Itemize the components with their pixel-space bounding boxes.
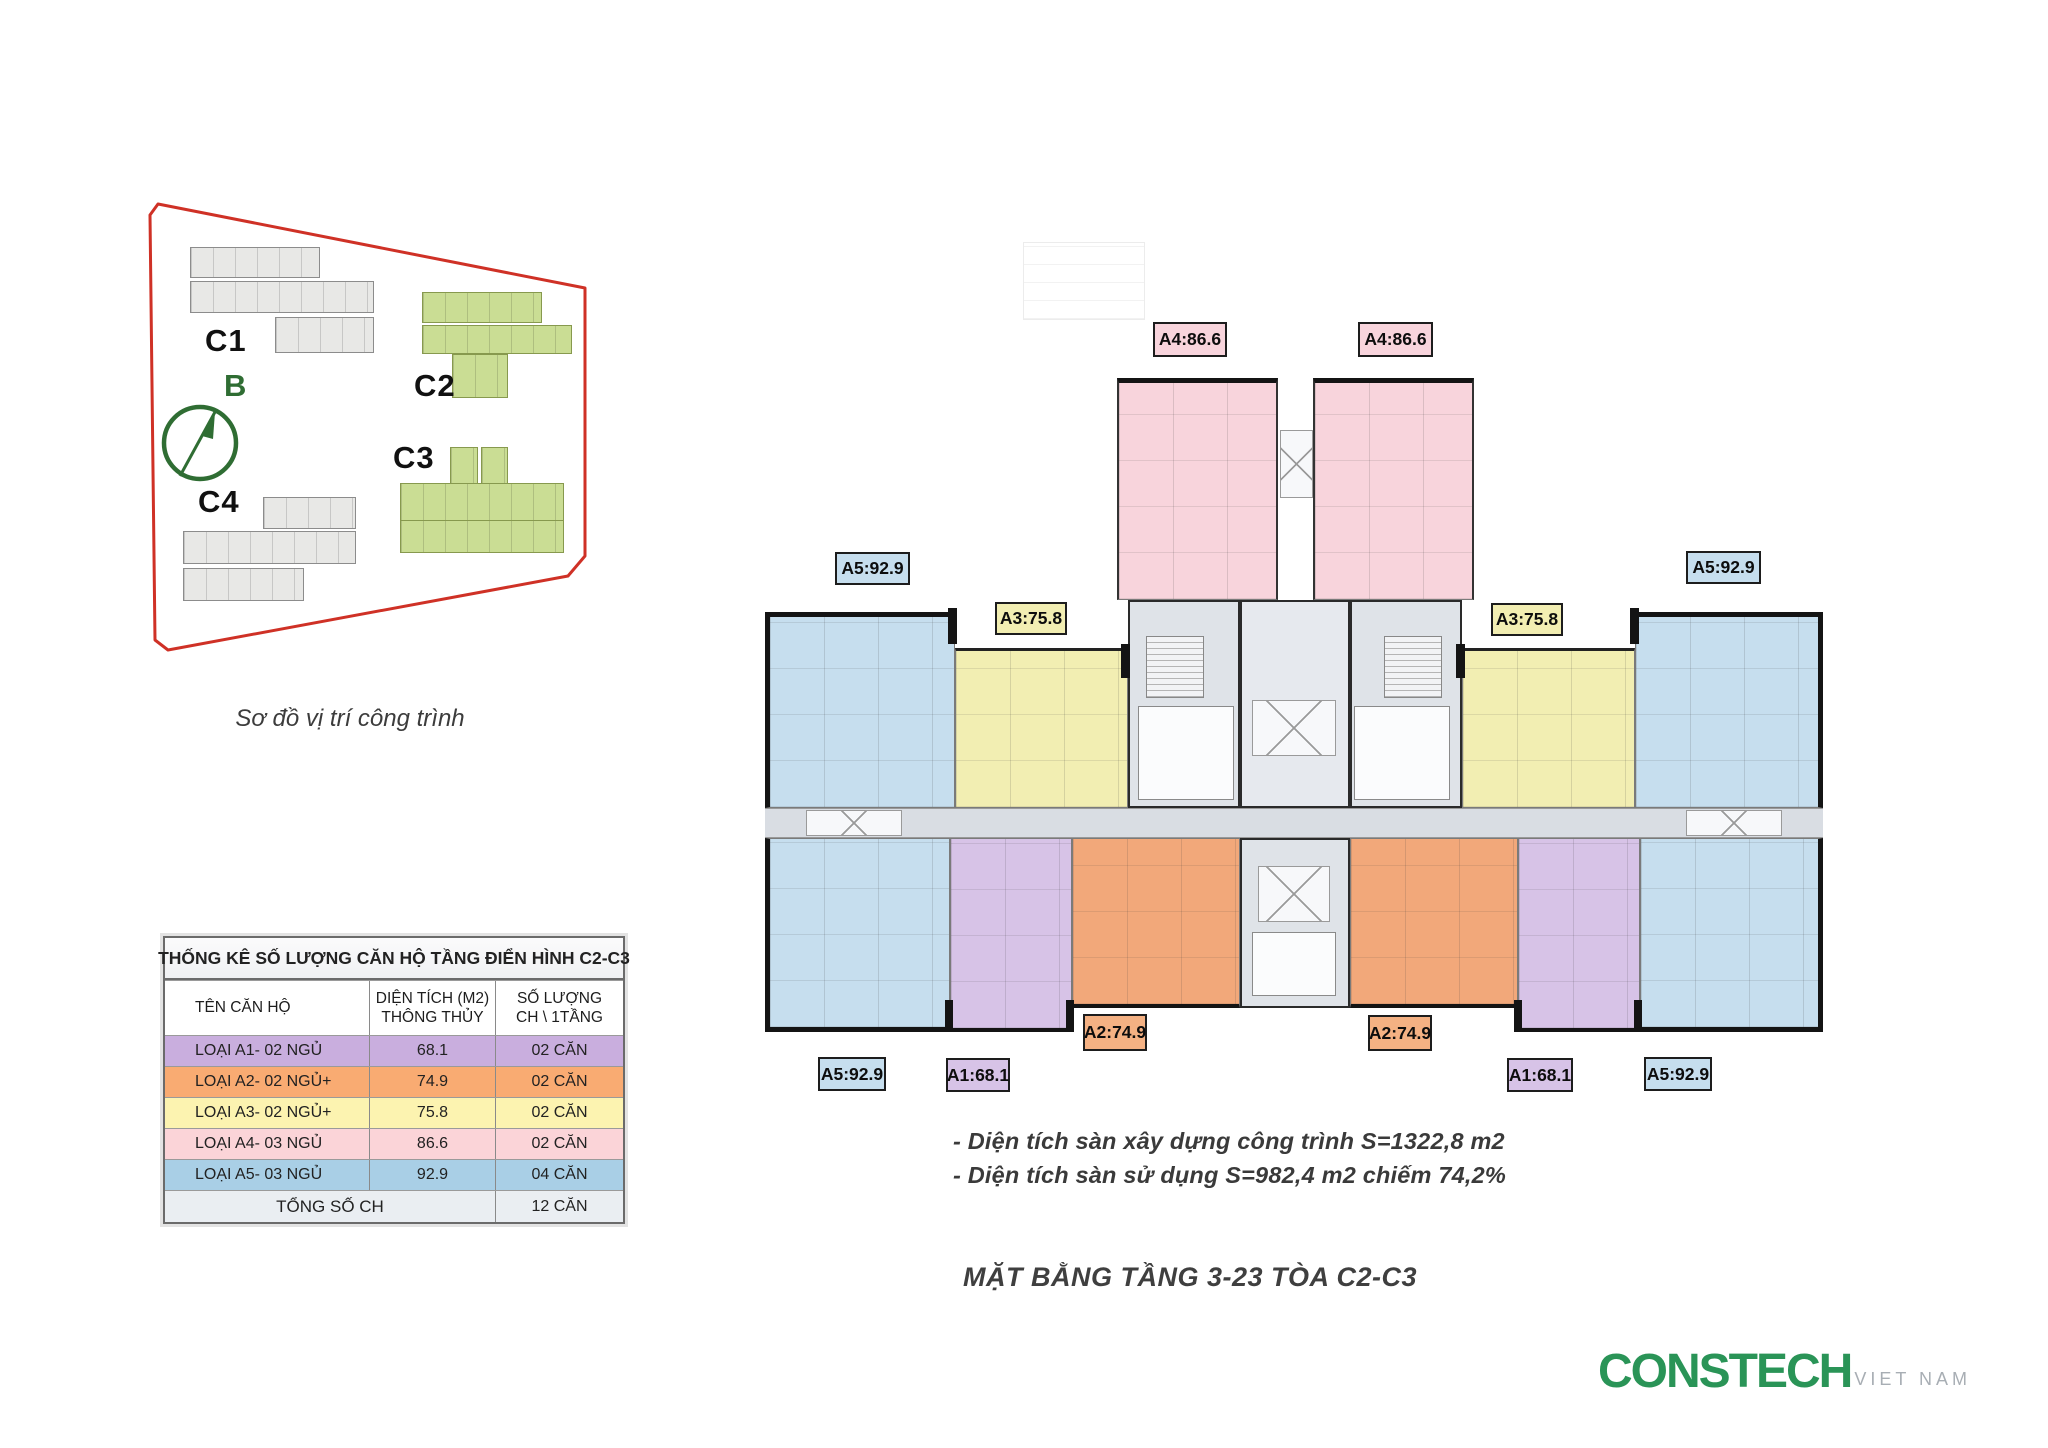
unit-label-a3-right: A3:75.8 bbox=[1491, 603, 1563, 636]
unit-a4-left bbox=[1117, 378, 1278, 600]
unit-label-a1-left: A1:68.1 bbox=[946, 1058, 1010, 1092]
wall-segment bbox=[1066, 1000, 1074, 1032]
note-line-2: - Diện tích sàn sử dụng S=982,4 m2 chiếm… bbox=[953, 1158, 1506, 1192]
logo-brand-text: CONSTECH bbox=[1598, 1348, 1851, 1396]
stair-left bbox=[1146, 636, 1204, 698]
wall-segment bbox=[1456, 644, 1465, 678]
unit-label-a2-left: A2:74.9 bbox=[1083, 1014, 1147, 1051]
unit-a2-left bbox=[1072, 838, 1240, 1008]
unit-a2-right bbox=[1350, 838, 1518, 1008]
note-line-1: - Diện tích sàn xây dựng công trình S=13… bbox=[953, 1124, 1506, 1158]
plan-title: MẶT BẰNG TẦNG 3-23 TÒA C2-C3 bbox=[930, 1262, 1450, 1293]
unit-a5-top-right bbox=[1635, 612, 1823, 808]
lift-lobby-left bbox=[806, 810, 902, 836]
unit-a4-right bbox=[1313, 378, 1474, 600]
corridor bbox=[765, 808, 1823, 838]
area-notes: - Diện tích sàn xây dựng công trình S=13… bbox=[953, 1124, 1506, 1192]
unit-label-a2-right: A2:74.9 bbox=[1368, 1015, 1432, 1051]
unit-label-a3-left: A3:75.8 bbox=[995, 602, 1067, 635]
unit-label-a5-top-left: A5:92.9 bbox=[835, 552, 910, 585]
unit-label-a4-left: A4:86.6 bbox=[1153, 322, 1227, 357]
faint-sketch bbox=[1023, 242, 1145, 320]
constech-logo: CONSTECHVIET NAM bbox=[1598, 1348, 1971, 1396]
shaft-between-a4 bbox=[1280, 430, 1313, 498]
core-room-left bbox=[1138, 706, 1234, 800]
unit-a1-left bbox=[950, 838, 1072, 1032]
wall-segment bbox=[1630, 608, 1639, 644]
lift-lobby-right bbox=[1686, 810, 1782, 836]
unit-a5-bottom-right bbox=[1640, 838, 1823, 1032]
unit-a5-bottom-left bbox=[765, 838, 950, 1032]
logo-region-text: VIET NAM bbox=[1854, 1369, 1971, 1396]
unit-label-a4-right: A4:86.6 bbox=[1358, 322, 1433, 357]
unit-label-a1-right: A1:68.1 bbox=[1507, 1058, 1573, 1092]
unit-a3-right bbox=[1462, 648, 1635, 808]
drawing-sheet: C1 C2 C3 C4 B Sơ đồ vị trí công trình TH… bbox=[0, 0, 2048, 1448]
wall-segment bbox=[1634, 1000, 1642, 1032]
stair-right bbox=[1384, 636, 1442, 698]
core-room-right bbox=[1354, 706, 1450, 800]
wall-segment bbox=[945, 1000, 953, 1032]
unit-label-a5-top-right: A5:92.9 bbox=[1686, 551, 1761, 584]
wall-segment bbox=[948, 608, 957, 644]
wall-segment bbox=[1121, 644, 1130, 678]
shaft-bottom bbox=[1258, 866, 1330, 922]
unit-label-a5-bottom-right: A5:92.9 bbox=[1644, 1057, 1712, 1091]
unit-a3-left bbox=[955, 648, 1128, 808]
unit-label-a5-bottom-left: A5:92.9 bbox=[818, 1057, 886, 1091]
unit-a1-right bbox=[1518, 838, 1640, 1032]
unit-a5-top-left bbox=[765, 612, 955, 808]
floor-plan: A4:86.6 A4:86.6 A5:92.9 A5:92.9 A3:75.8 … bbox=[0, 0, 2048, 1448]
shaft-center bbox=[1252, 700, 1336, 756]
core-room-bottom bbox=[1252, 932, 1336, 996]
wall-segment bbox=[1514, 1000, 1522, 1032]
